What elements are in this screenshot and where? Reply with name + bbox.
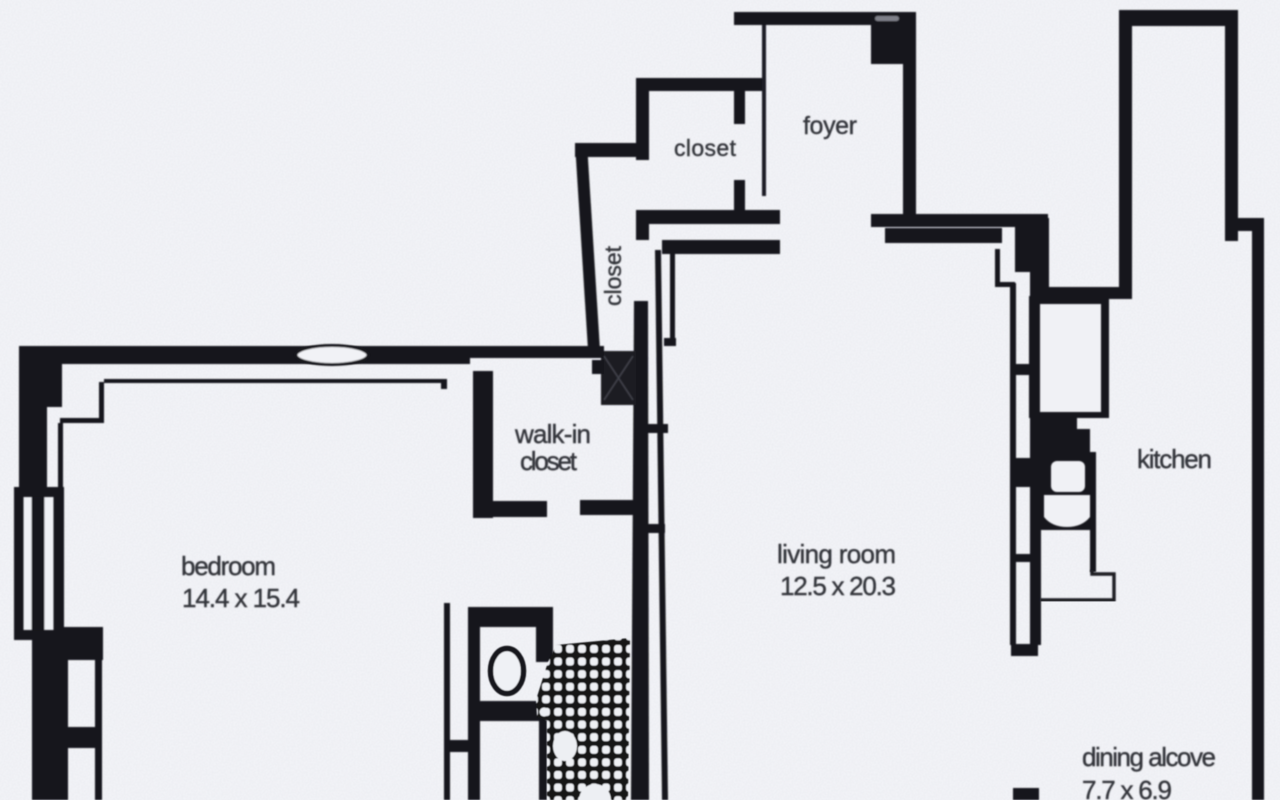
svg-text:kitchen: kitchen — [1137, 444, 1212, 474]
svg-text:14.4 x 15.4: 14.4 x 15.4 — [182, 583, 300, 613]
svg-text:bedroom: bedroom — [181, 551, 276, 581]
svg-text:walk-in: walk-in — [514, 419, 591, 449]
svg-text:7.7 x 6.9: 7.7 x 6.9 — [1082, 775, 1172, 800]
svg-text:dining alcove: dining alcove — [1082, 742, 1216, 772]
svg-text:closet: closet — [600, 245, 626, 306]
svg-text:living room: living room — [777, 539, 896, 569]
svg-text:12.5 x 20.3: 12.5 x 20.3 — [780, 571, 896, 601]
svg-text:closet: closet — [520, 446, 578, 476]
svg-text:foyer: foyer — [803, 112, 857, 140]
svg-text:closet: closet — [674, 135, 737, 161]
